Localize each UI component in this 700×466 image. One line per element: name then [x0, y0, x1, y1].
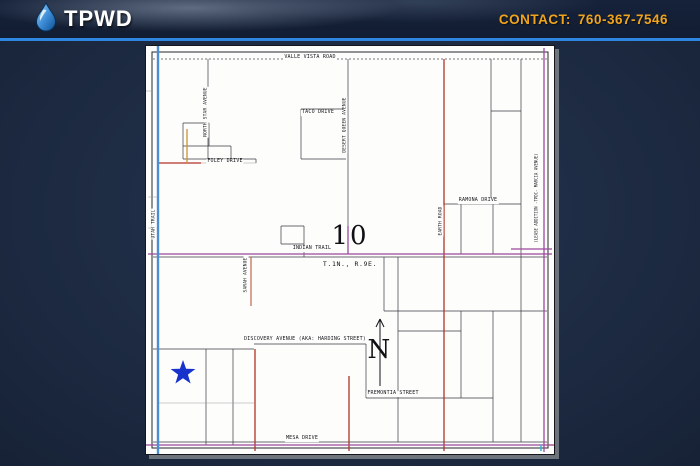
- header-bar: TPWD CONTACT: 760-367-7546: [0, 0, 700, 41]
- street-label-sarah-avenue: SARAH AVENUE: [243, 257, 248, 294]
- north-arrow-label: N: [367, 337, 392, 363]
- contact-phone: 760-367-7546: [578, 12, 668, 27]
- water-drop-icon: [34, 2, 58, 37]
- street-label-valle-vista-road: VALLE VISTA ROAD: [283, 55, 336, 61]
- township-range-label: T.1N., R.9E.: [322, 261, 378, 268]
- street-label-lease-addition: (LEASE ADDITION -TPDC- MARCIA AVENUE): [535, 152, 540, 243]
- street-label-ramona-drive: RAMONA DRIVE: [458, 198, 499, 204]
- street-label-north-star-avenue: NORTH STAR AVENUE: [203, 86, 208, 137]
- street-label-foley-drive: FOLEY DRIVE: [206, 159, 243, 165]
- street-label-indian-trail: INDIAN TRAIL: [292, 246, 333, 252]
- location-star-icon: [171, 360, 196, 384]
- street-label-taco-drive: TACO DRIVE: [301, 110, 335, 116]
- street-label-fremontia-street: FREMONTIA STREET: [366, 391, 419, 397]
- street-label-earth-road: EARTH ROAD: [438, 205, 443, 236]
- plat-map: VALLE VISTA ROAD TACO DRIVE NORTH STAR A…: [145, 45, 555, 455]
- page: TPWD CONTACT: 760-367-7546: [0, 0, 700, 466]
- street-label-discovery-avenue: DISCOVERY AVENUE (AKA: HARDING STREET): [243, 337, 367, 343]
- street-label-mesa-drive: MESA DRIVE: [285, 436, 319, 442]
- logo: TPWD: [34, 3, 133, 35]
- contact-label: CONTACT:: [499, 12, 571, 27]
- street-label-utah-trail: UTAH TRAIL: [151, 208, 156, 239]
- section-number: 10: [330, 223, 369, 249]
- logo-text: TPWD: [64, 6, 133, 32]
- street-label-desert-queen-avenue: DESERT QUEEN AVENUE: [342, 96, 347, 153]
- orange-road-lines: [187, 129, 553, 445]
- contact-info: CONTACT: 760-367-7546: [499, 0, 668, 38]
